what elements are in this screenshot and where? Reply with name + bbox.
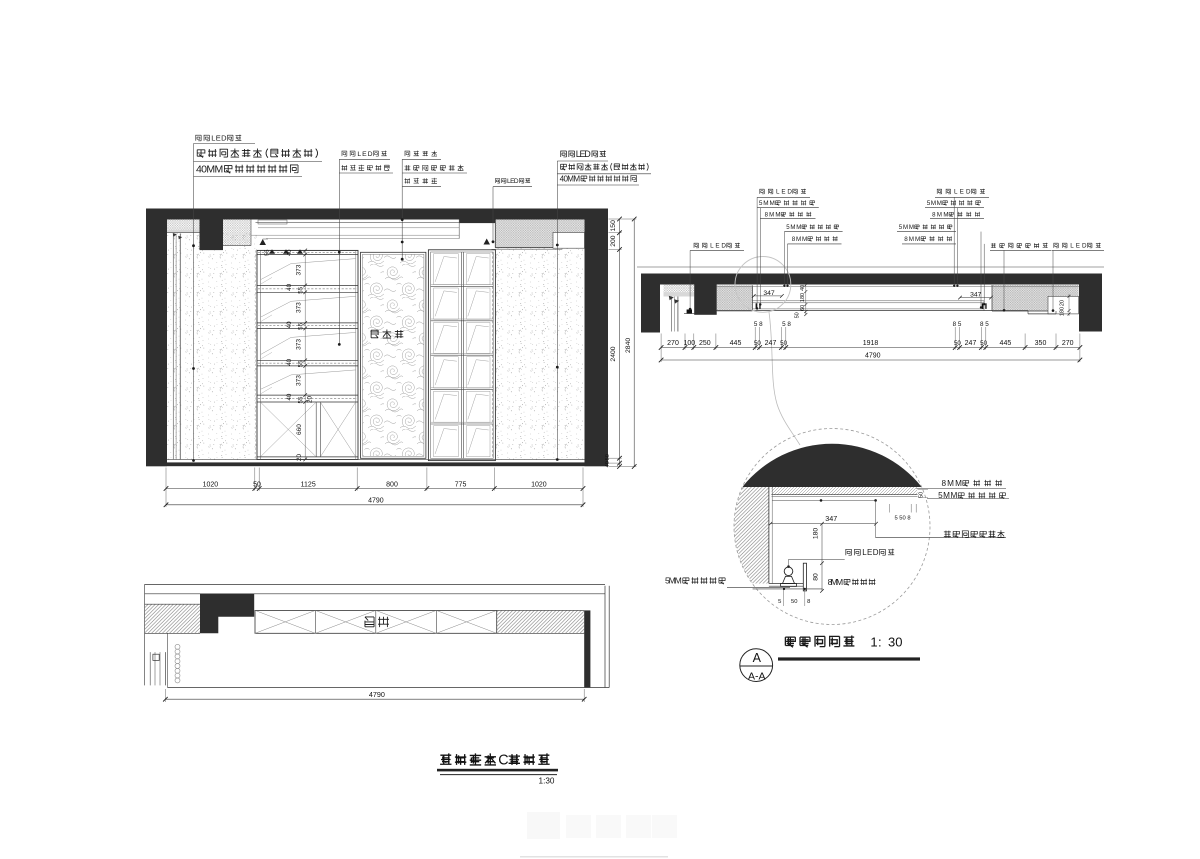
- svg-text:250: 250: [699, 340, 711, 347]
- svg-text::: :: [878, 635, 882, 650]
- svg-text:40: 40: [287, 249, 293, 255]
- svg-text:8MM: 8MM: [932, 211, 948, 218]
- svg-text:5MM: 5MM: [938, 491, 957, 500]
- svg-text:180: 180: [800, 293, 806, 302]
- svg-text:40: 40: [286, 321, 293, 328]
- svg-text:50: 50: [954, 340, 961, 347]
- svg-text:40: 40: [286, 358, 293, 365]
- svg-text:775: 775: [455, 481, 467, 488]
- svg-text:100: 100: [683, 340, 695, 347]
- svg-text:1020: 1020: [531, 481, 547, 488]
- svg-text:50: 50: [980, 340, 987, 347]
- svg-text:50: 50: [754, 340, 761, 347]
- svg-text:5 8: 5 8: [754, 321, 763, 328]
- svg-text:5 8: 5 8: [782, 321, 791, 328]
- svg-text:55: 55: [298, 360, 305, 367]
- svg-text:4790: 4790: [865, 352, 881, 359]
- svg-text:50: 50: [794, 312, 800, 318]
- svg-text:40: 40: [605, 461, 611, 467]
- svg-text:445: 445: [1000, 340, 1012, 347]
- svg-text:445: 445: [730, 340, 742, 347]
- svg-text:1125: 1125: [301, 481, 316, 488]
- svg-text:1:30: 1:30: [539, 777, 555, 786]
- svg-text:20: 20: [307, 396, 314, 403]
- svg-text:40MM: 40MM: [196, 164, 223, 176]
- svg-text:5MM: 5MM: [927, 200, 942, 207]
- svg-text:347: 347: [970, 291, 982, 298]
- svg-text:40: 40: [800, 285, 806, 291]
- svg-text:8MM: 8MM: [904, 236, 920, 243]
- svg-text:50: 50: [253, 481, 261, 488]
- svg-text:8MM: 8MM: [765, 211, 781, 218]
- svg-text:LED: LED: [710, 243, 726, 250]
- svg-text:LED: LED: [862, 548, 879, 557]
- svg-text:8 5: 8 5: [953, 321, 962, 328]
- svg-text:40MM: 40MM: [560, 174, 581, 183]
- svg-text:8 5: 8 5: [980, 321, 989, 328]
- svg-text:347: 347: [763, 290, 775, 297]
- svg-text:55: 55: [298, 322, 305, 329]
- svg-text:373: 373: [296, 264, 303, 275]
- svg-text:C: C: [498, 753, 508, 769]
- svg-text:270: 270: [1062, 340, 1074, 347]
- svg-text:30: 30: [888, 635, 902, 650]
- svg-text:A: A: [753, 651, 762, 665]
- svg-text:373: 373: [296, 375, 303, 386]
- svg-text:LED: LED: [776, 189, 792, 196]
- svg-text:180: 180: [1059, 307, 1065, 316]
- svg-text:2840: 2840: [625, 338, 632, 353]
- svg-text:270: 270: [667, 340, 679, 347]
- svg-text:4790: 4790: [368, 498, 384, 505]
- svg-text:50: 50: [918, 492, 924, 498]
- svg-text:180: 180: [813, 528, 820, 540]
- svg-text:55: 55: [265, 249, 271, 255]
- svg-text:347: 347: [825, 514, 837, 523]
- svg-text:5MM: 5MM: [786, 224, 801, 231]
- svg-text:60: 60: [800, 305, 806, 311]
- svg-text:1: 1: [870, 635, 877, 650]
- svg-text:50: 50: [780, 340, 787, 347]
- svg-text:A-A: A-A: [748, 671, 766, 683]
- svg-text:LED: LED: [576, 149, 592, 159]
- svg-text:200: 200: [610, 235, 617, 247]
- svg-text:5MM: 5MM: [665, 576, 682, 586]
- svg-text:LED: LED: [211, 134, 227, 143]
- svg-text:8MM: 8MM: [942, 479, 963, 488]
- svg-text:50: 50: [605, 454, 611, 460]
- svg-text:247: 247: [765, 340, 777, 347]
- svg-text:55: 55: [298, 286, 305, 293]
- svg-text:LED: LED: [1070, 243, 1087, 250]
- svg-text:373: 373: [296, 339, 303, 350]
- svg-text:80: 80: [813, 573, 820, 581]
- svg-text:50: 50: [791, 599, 797, 605]
- svg-text:20: 20: [1059, 300, 1065, 306]
- svg-text:40: 40: [286, 393, 293, 400]
- svg-text:40: 40: [286, 283, 293, 290]
- svg-text:2400: 2400: [610, 346, 617, 361]
- svg-text:1020: 1020: [203, 481, 219, 488]
- svg-text:8MM: 8MM: [828, 577, 844, 587]
- svg-text:4790: 4790: [369, 690, 385, 699]
- svg-text:373: 373: [296, 302, 303, 313]
- svg-text:5MM: 5MM: [759, 200, 775, 207]
- svg-text:LED: LED: [507, 178, 519, 185]
- svg-text:8MM: 8MM: [792, 236, 808, 243]
- svg-text:800: 800: [386, 481, 398, 488]
- svg-text:LED: LED: [954, 189, 971, 196]
- svg-text:247: 247: [965, 340, 977, 347]
- svg-text:5 50 8: 5 50 8: [894, 516, 910, 522]
- svg-text:350: 350: [1035, 340, 1047, 347]
- svg-text:660: 660: [296, 424, 303, 435]
- svg-text:150: 150: [610, 220, 617, 232]
- svg-text:5: 5: [778, 599, 781, 605]
- svg-text:5MM: 5MM: [899, 224, 914, 231]
- svg-text:8: 8: [807, 599, 810, 605]
- svg-text:LED: LED: [357, 151, 372, 158]
- svg-text:55: 55: [298, 396, 305, 403]
- svg-text:1918: 1918: [863, 340, 879, 347]
